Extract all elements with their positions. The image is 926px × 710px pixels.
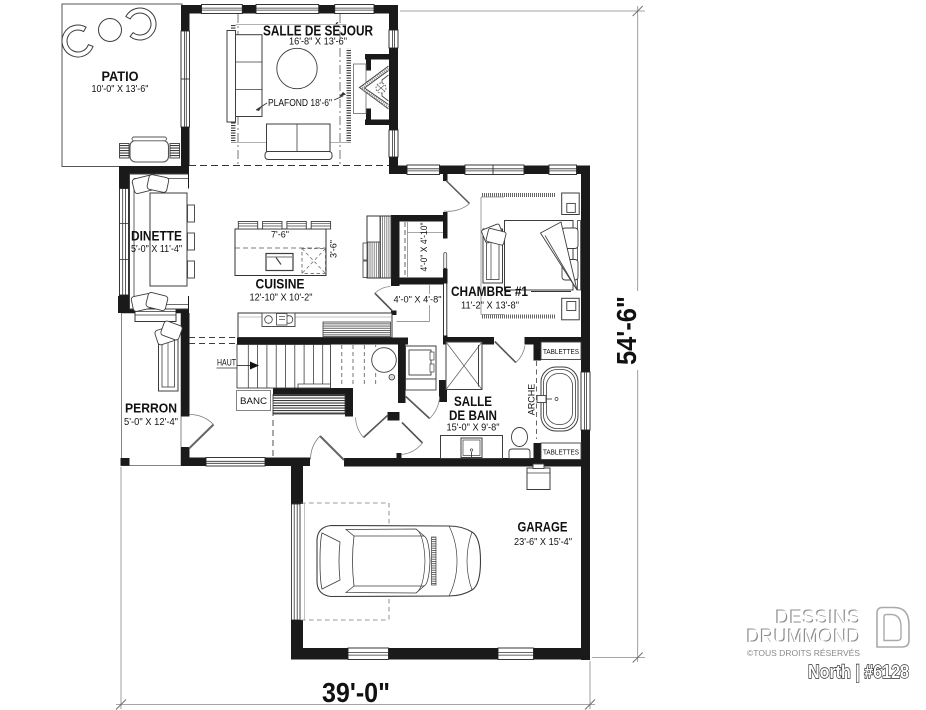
svg-text:23'-6" X 15'-4": 23'-6" X 15'-4"	[514, 536, 572, 548]
svg-text:11'-2" X 13'-8": 11'-2" X 13'-8"	[461, 300, 519, 312]
svg-text:10'-0" X 13'-6": 10'-0" X 13'-6"	[92, 83, 149, 95]
svg-text:5'-0" X 11'-4": 5'-0" X 11'-4"	[131, 243, 182, 255]
svg-text:ARCHE: ARCHE	[527, 384, 537, 416]
svg-text:5'-0" X 12'-4": 5'-0" X 12'-4"	[124, 416, 178, 428]
svg-text:4'-0" X 4'-8": 4'-0" X 4'-8"	[394, 295, 442, 306]
svg-text:TABLETTES: TABLETTES	[543, 347, 579, 356]
svg-text:PLAFOND 18'-6": PLAFOND 18'-6"	[268, 97, 332, 109]
svg-text:39'-0": 39'-0"	[322, 677, 390, 708]
svg-text:SALLE: SALLE	[454, 394, 492, 409]
svg-text:DRUMMOND: DRUMMOND	[747, 626, 861, 648]
svg-text:HAUT: HAUT	[217, 358, 236, 368]
svg-text:15'-0" X 9'-8": 15'-0" X 9'-8"	[447, 422, 500, 434]
svg-text:DINETTE: DINETTE	[131, 229, 182, 244]
svg-text:16'-8" X 13'-6": 16'-8" X 13'-6"	[289, 36, 347, 48]
svg-text:CHAMBRE #1: CHAMBRE #1	[451, 284, 528, 299]
svg-text:PATIO: PATIO	[102, 69, 139, 84]
svg-text:TABLETTES: TABLETTES	[543, 448, 579, 457]
svg-text:GARAGE: GARAGE	[518, 520, 568, 535]
svg-text:BANC: BANC	[240, 396, 267, 407]
svg-text:12'-10" X 10'-2": 12'-10" X 10'-2"	[250, 292, 313, 304]
svg-text:North | #6128: North | #6128	[808, 661, 909, 682]
svg-text:PERRON: PERRON	[125, 401, 177, 416]
svg-text:©TOUS DROITS RÉSERVÉS: ©TOUS DROITS RÉSERVÉS	[747, 648, 860, 658]
svg-text:CUISINE: CUISINE	[256, 277, 305, 292]
svg-text:4'-0" X 4'-10": 4'-0" X 4'-10"	[419, 223, 430, 272]
svg-text:54'-6": 54'-6"	[611, 296, 642, 365]
svg-text:7'-6": 7'-6"	[271, 230, 289, 240]
svg-text:3'-6": 3'-6"	[329, 240, 339, 258]
